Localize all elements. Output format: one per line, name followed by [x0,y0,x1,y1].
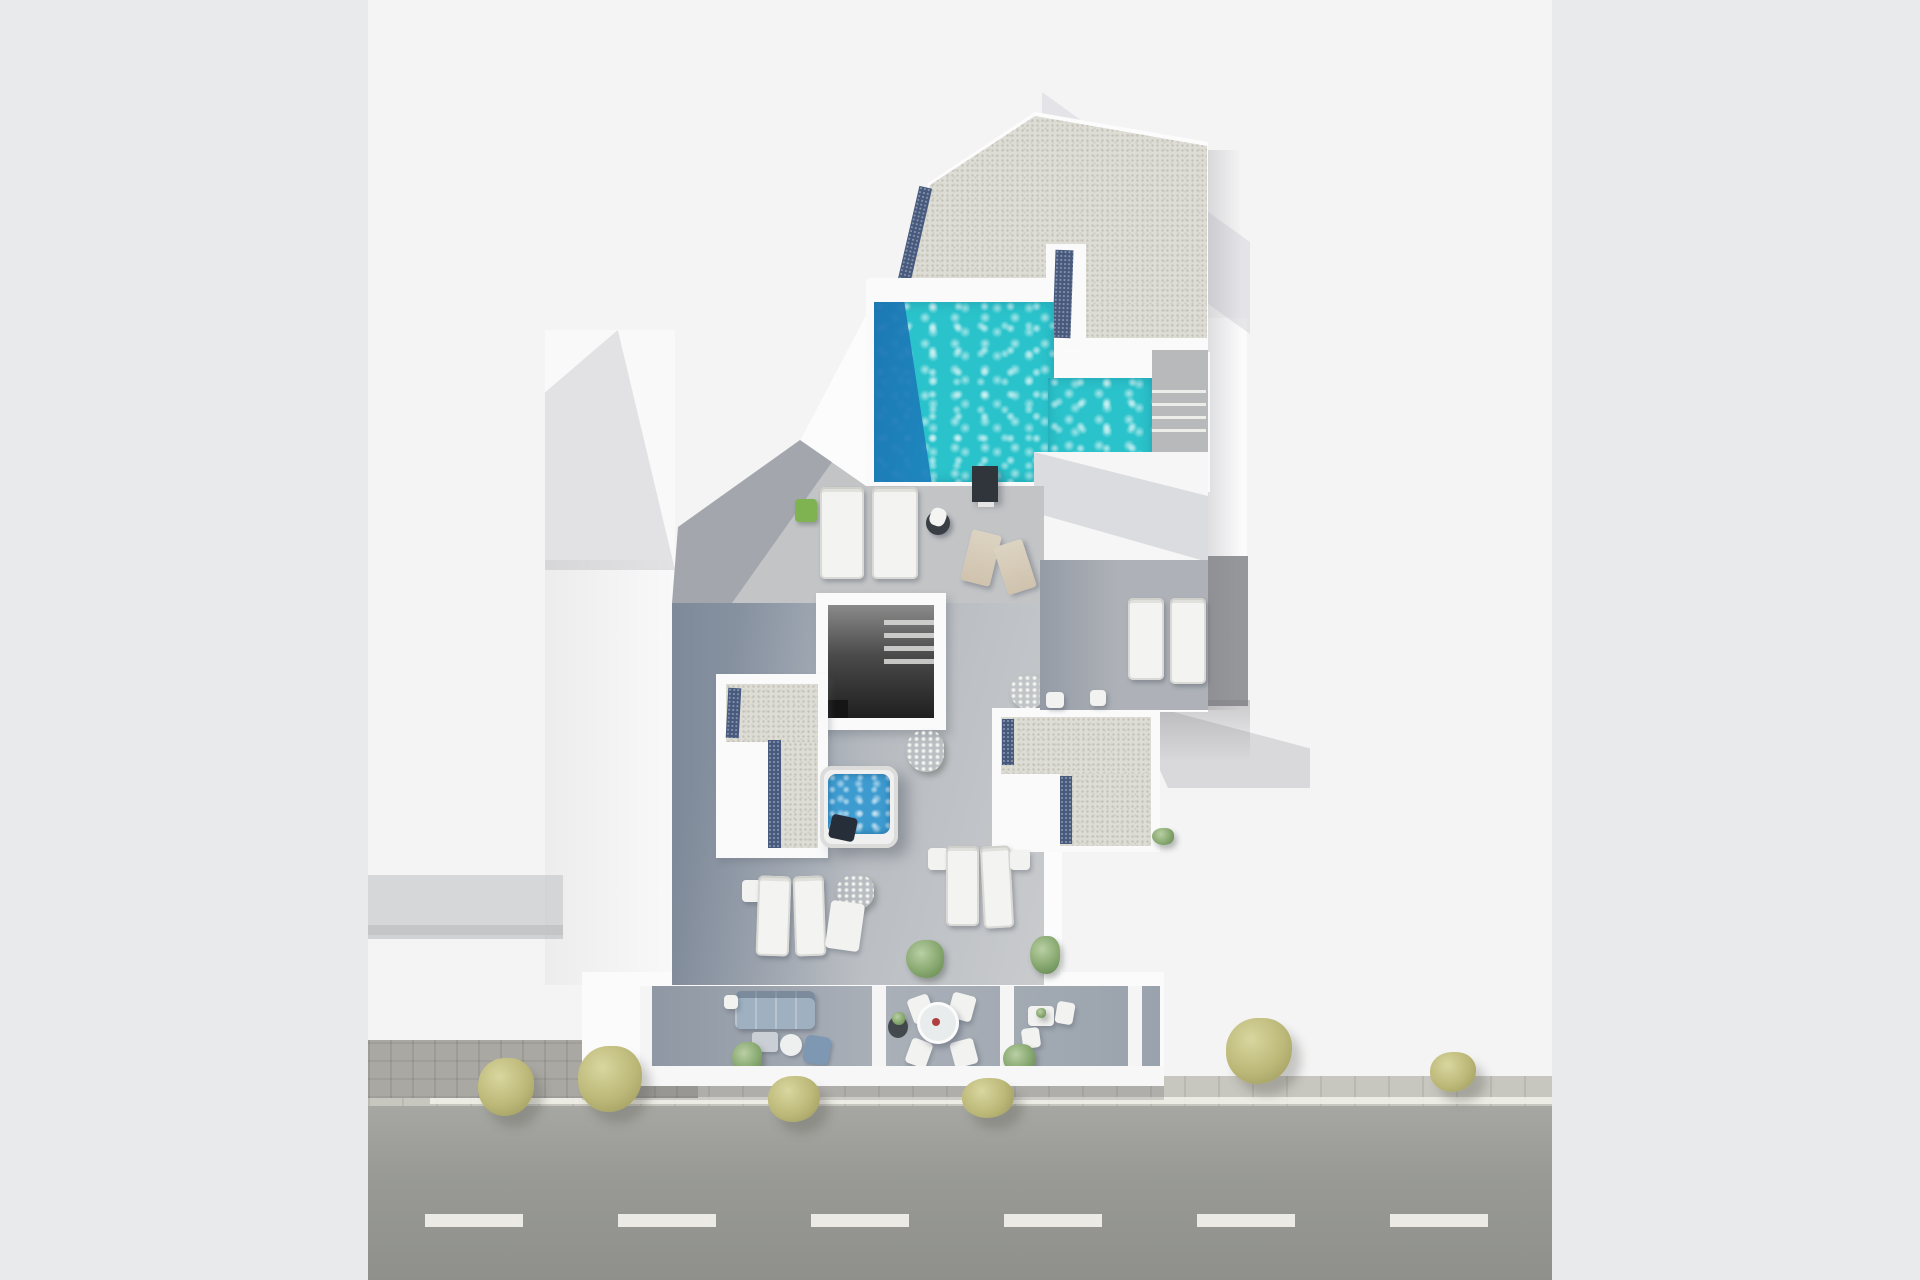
terrace-strip-b [768,740,781,848]
right-deck-shade [1040,560,1120,710]
patio-round-table [780,1034,802,1056]
neighbor-left-face-shade [545,560,675,985]
bistro-chair-1 [1054,1001,1076,1026]
right-terrace-shrub [1030,936,1060,974]
right-deck-table-1 [1046,692,1064,708]
left-terrace-lounger-1 [756,875,792,956]
aerial-floorplan-render [0,0,1920,1280]
t-strip-a [1002,719,1014,765]
patio-divider-right-end [1128,986,1142,1070]
shower-base [978,502,994,507]
left-terrace-shrub [906,940,944,978]
sun-lounger-2 [872,487,918,579]
left-terrace-chair [825,900,865,952]
road-center-dashed-line [425,1214,1555,1227]
neighbor-left-cast-shadow-line [368,925,563,939]
dining-table-decor [932,1018,940,1026]
stairwell-door-gap [828,700,848,718]
road [368,1102,1552,1280]
right-terrace-table-1 [928,848,948,870]
right-apartment-lounger-2 [1170,598,1206,684]
bottom-parapet-wall [582,1066,1164,1086]
jacuzzi-seat [828,814,858,843]
patio-pouf [802,1034,832,1066]
stair-side-plant [1010,675,1044,709]
mid-plant-flowering [906,730,944,772]
right-apartment-lounger-1 [1128,598,1164,680]
patio-sofa-side-table [724,995,738,1009]
stair-treads [884,612,934,664]
patio-sofa [735,991,815,1029]
patio-divider-1 [872,986,886,1070]
t-gravel-stem [1060,774,1151,846]
right-terrace-lounger-2 [980,845,1014,928]
t-strip-b [1060,776,1072,844]
dining-side-plant [892,1012,905,1025]
terrace-strip-a [726,688,742,739]
building-cast-shadow-right [1208,150,1242,710]
sun-lounger-1 [820,487,864,579]
outdoor-shower-panel [972,466,998,502]
roof-notch-strip [1052,250,1073,339]
right-terrace-table-2 [1010,850,1030,870]
stair-railings [1152,390,1206,440]
t-gravel-top [1001,717,1151,774]
t-shrub [1152,828,1174,845]
parapet-shadow [582,1086,1164,1100]
rooftop-plant-pot [795,499,817,522]
bistro-plant-dot [1036,1008,1046,1018]
right-terrace-lounger-1 [946,846,979,926]
patio-divider-left-end [640,986,652,1070]
right-deck-table-2 [1090,690,1106,706]
left-terrace-lounger-2 [793,875,827,956]
